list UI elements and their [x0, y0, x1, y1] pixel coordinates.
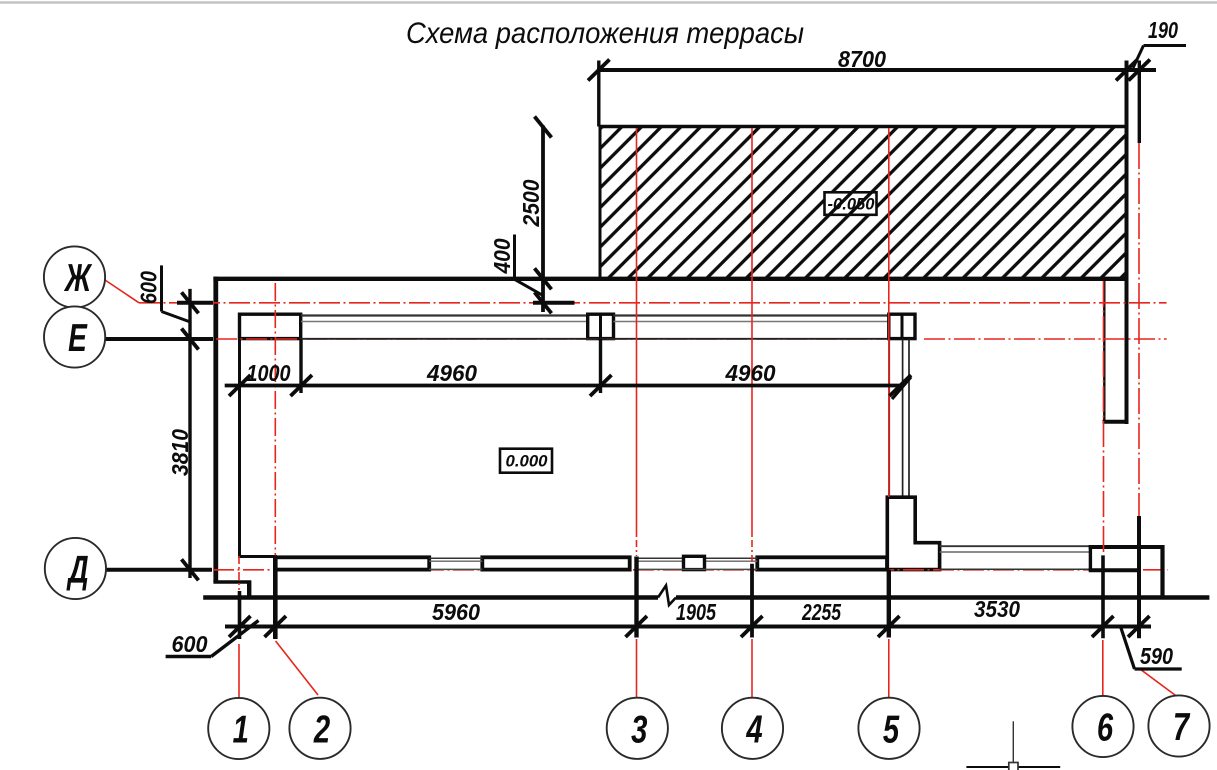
svg-text:8700: 8700 [838, 46, 886, 72]
svg-text:7: 7 [1173, 706, 1191, 749]
svg-text:Схема расположения террасы: Схема расположения террасы [406, 17, 804, 50]
svg-text:6: 6 [1097, 707, 1114, 750]
svg-text:2: 2 [313, 708, 330, 751]
svg-text:3530: 3530 [974, 596, 1020, 622]
svg-text:4960: 4960 [426, 360, 477, 386]
svg-text:3810: 3810 [167, 429, 193, 476]
svg-text:190: 190 [1148, 17, 1178, 43]
svg-text:3: 3 [631, 708, 647, 751]
svg-text:Д: Д [66, 548, 89, 592]
svg-text:590: 590 [1140, 643, 1173, 669]
svg-text:Е: Е [68, 317, 88, 361]
svg-text:2255: 2255 [801, 599, 842, 625]
svg-text:600: 600 [136, 271, 162, 304]
svg-text:5960: 5960 [432, 599, 480, 625]
svg-text:2500: 2500 [518, 179, 544, 227]
svg-text:4: 4 [746, 708, 763, 751]
svg-text:1000: 1000 [247, 360, 291, 386]
svg-text:1905: 1905 [676, 599, 717, 625]
svg-text:Ж: Ж [63, 257, 92, 301]
svg-text:400: 400 [489, 238, 515, 274]
svg-text:600: 600 [172, 631, 208, 657]
svg-text:0.000: 0.000 [506, 453, 549, 471]
svg-text:5: 5 [883, 708, 900, 751]
svg-text:4960: 4960 [725, 360, 776, 386]
svg-text:1: 1 [233, 709, 249, 752]
